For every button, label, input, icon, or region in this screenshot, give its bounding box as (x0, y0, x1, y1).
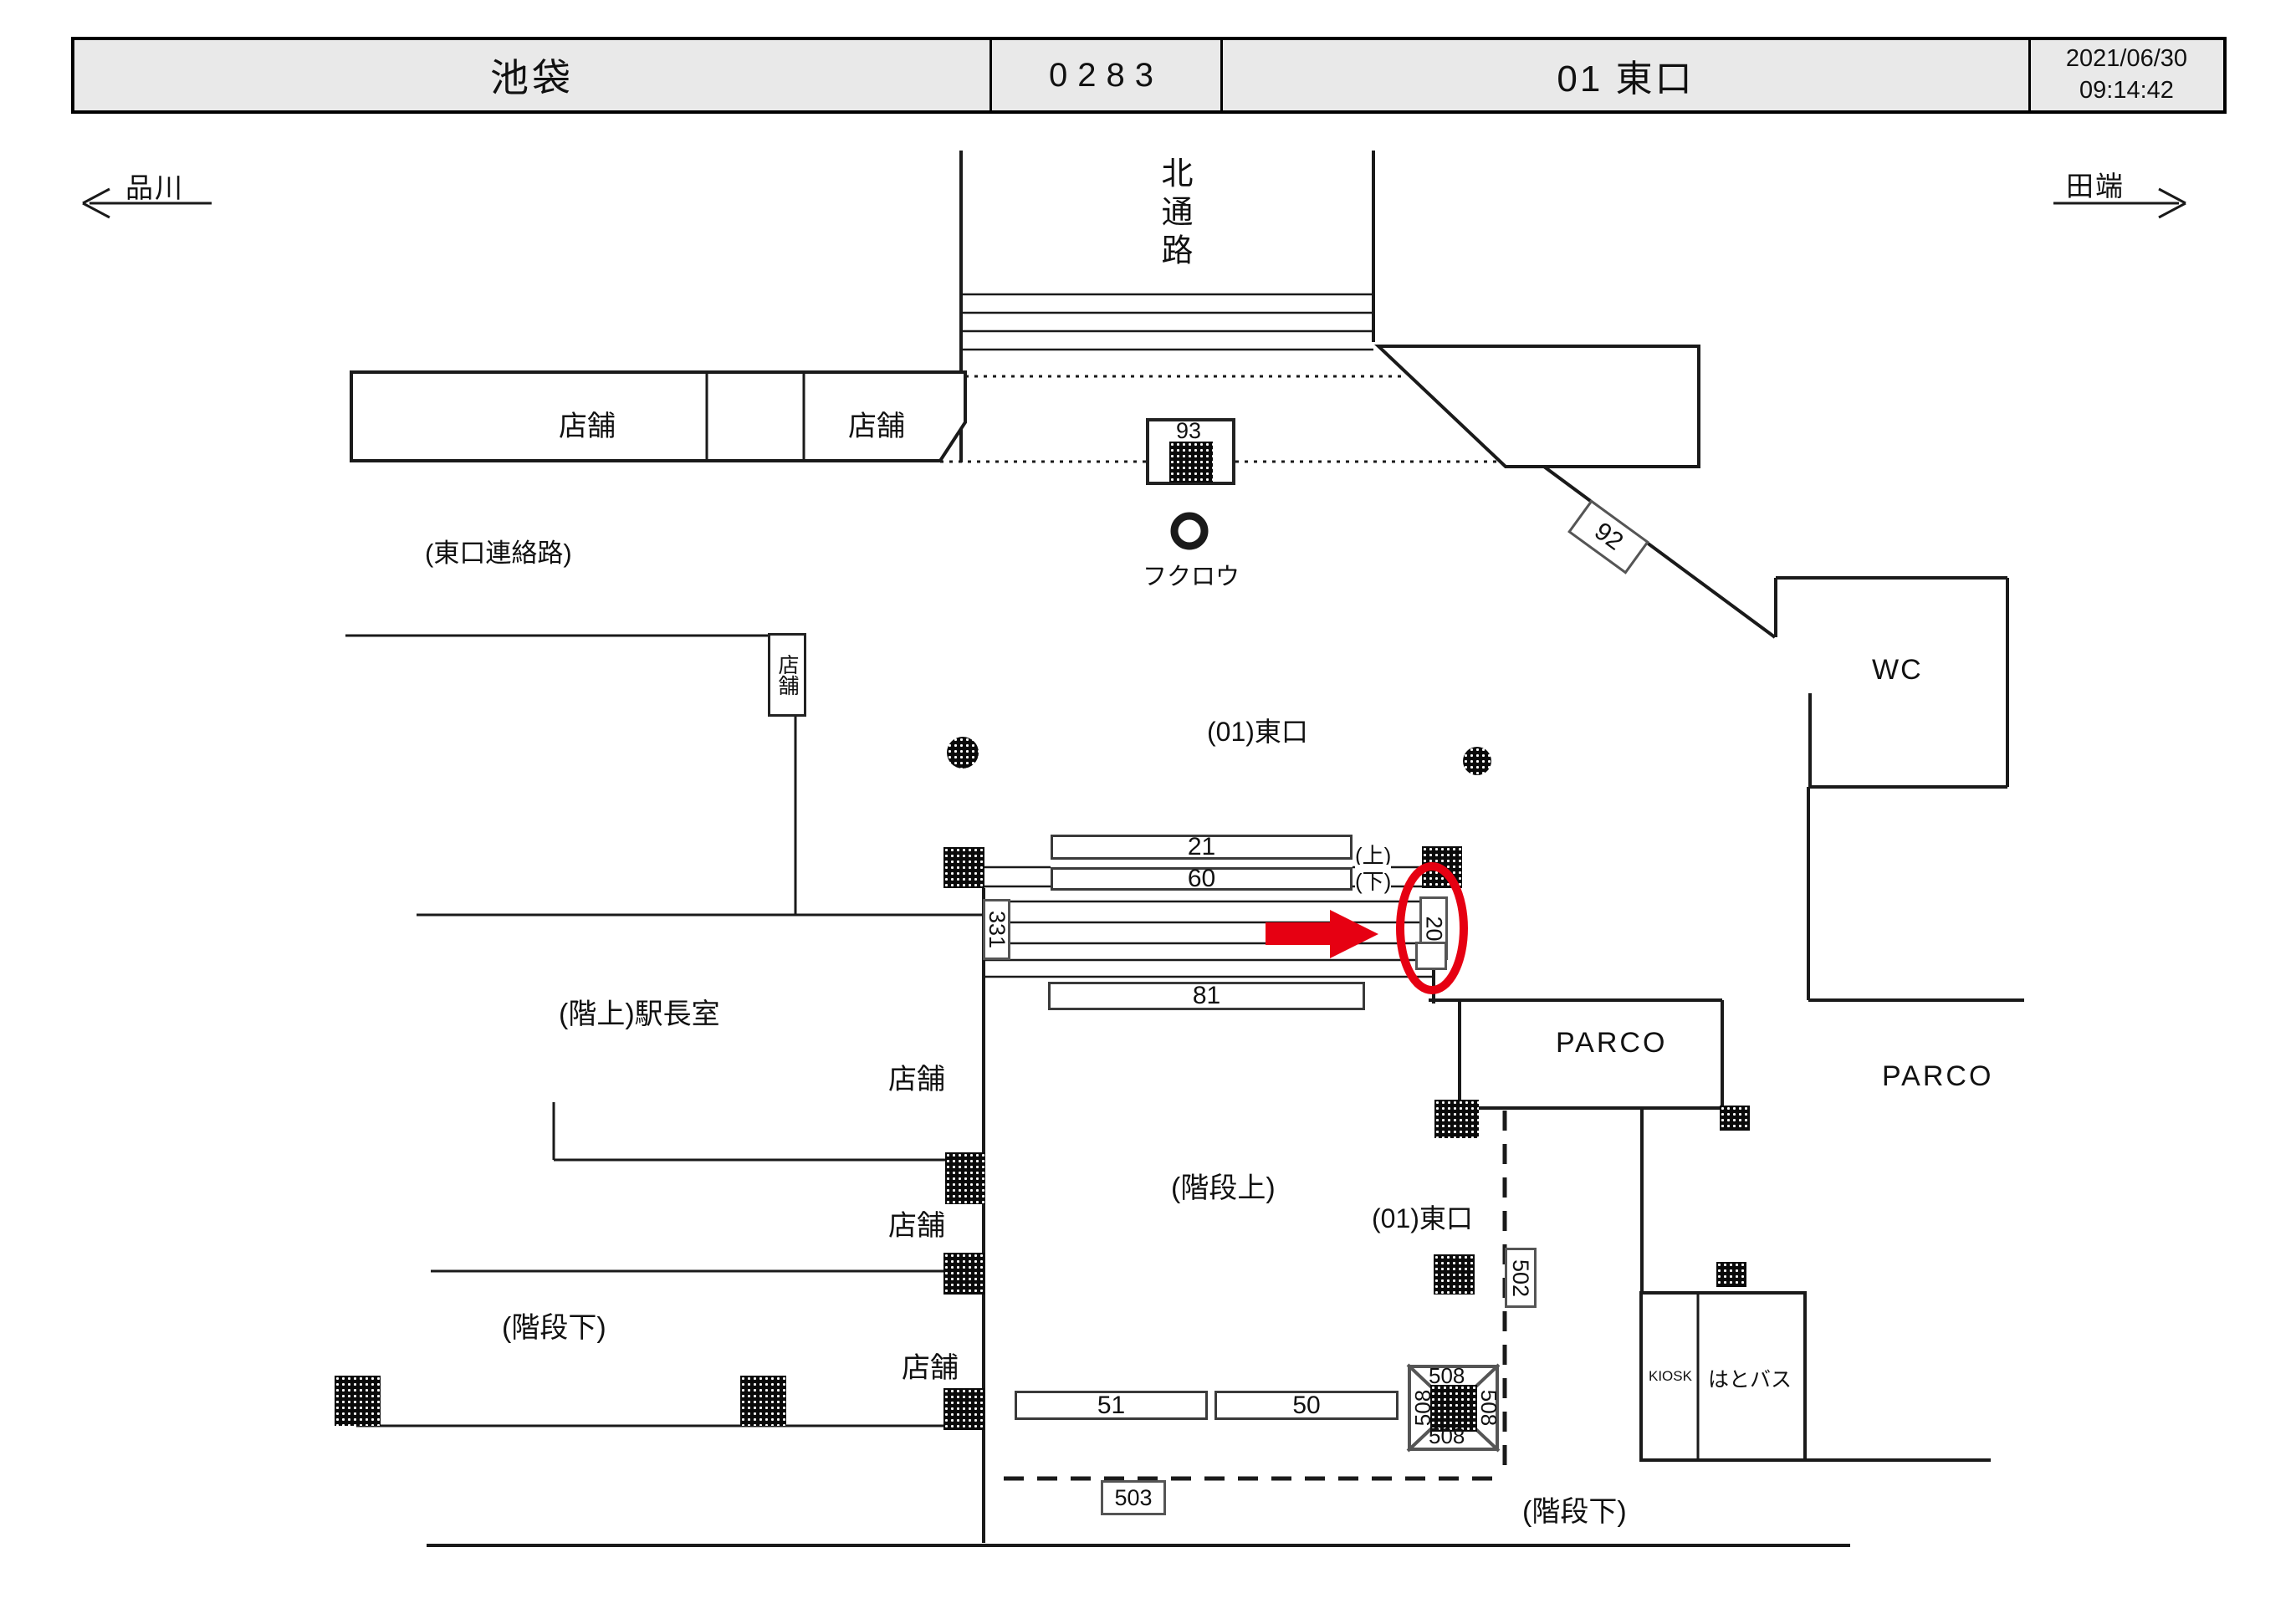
tag-503-label: 503 (1114, 1485, 1152, 1511)
shop-label-wall-2: 店舗 (888, 1203, 945, 1244)
tag-93-box[interactable]: 93 (1146, 418, 1235, 485)
station-map-canvas: 池袋 0283 01 東口 2021/06/30 09:14:42 品川 田端 … (0, 0, 2296, 1624)
tag-502-box[interactable]: 502 (1505, 1248, 1537, 1308)
hatobus-label: はとバス (1708, 1363, 1792, 1393)
tag-60-bar[interactable]: 60 (1051, 867, 1353, 891)
wall-pillar-3 (943, 1388, 984, 1430)
tag-81-bar[interactable]: 81 (1048, 982, 1365, 1010)
down-side-label: (下) (1355, 865, 1391, 896)
shop-label-band-1: 店舗 (559, 403, 616, 444)
tag-50-label: 50 (1292, 1392, 1320, 1420)
tag-20-label: 20 (1421, 916, 1447, 941)
shop-label-band-2: 店舗 (848, 403, 905, 444)
shop-label-wall-3: 店舗 (902, 1345, 959, 1386)
date-text: 2021/06/30 (2066, 43, 2187, 75)
parco-pillar-left (1434, 1100, 1479, 1138)
stationmaster-label: (階上)駅長室 (559, 991, 720, 1032)
tag-51-label: 51 (1097, 1392, 1125, 1420)
tag-503-box[interactable]: 503 (1101, 1480, 1166, 1515)
stairs-down-label-right: (階段下) (1522, 1489, 1627, 1530)
direction-left-label: 品川 (125, 166, 184, 206)
pillar-502 (1434, 1254, 1475, 1295)
floor-pillar-1 (335, 1376, 381, 1426)
tag-508-label-top: 508 (1429, 1363, 1465, 1389)
tag-81-label: 81 (1193, 982, 1220, 1010)
owl-label: フクロウ (1136, 557, 1246, 592)
shop-kiosk-box: 店舗 (768, 633, 806, 717)
parco-label-1: PARCO (1556, 1027, 1667, 1060)
header-bar: 池袋 0283 01 東口 2021/06/30 09:14:42 (71, 37, 2227, 114)
tag-508-label-bottom: 508 (1429, 1423, 1465, 1449)
tag-92-label: 92 (1589, 517, 1629, 556)
wall-pillar-1 (945, 1152, 985, 1204)
wall-pillar-2 (943, 1253, 984, 1295)
tag-50-bar[interactable]: 50 (1214, 1391, 1399, 1420)
kiosk-pillar (1716, 1262, 1746, 1287)
wc-room-outline (1776, 578, 2024, 1000)
tag-502-label: 502 (1508, 1259, 1534, 1296)
pillar-circle-left (947, 737, 979, 769)
east-exit-label-upper: (01)東口 (1207, 711, 1308, 749)
tag-60-label: 60 (1188, 865, 1215, 893)
wc-label: WC (1872, 654, 1923, 687)
floor-pillar-2 (740, 1376, 786, 1426)
owl-statue-icon (1174, 516, 1204, 546)
pillar-circle-right (1463, 747, 1491, 775)
parco-pillar-right (1720, 1106, 1750, 1131)
datetime-stamp: 2021/06/30 09:14:42 (2028, 40, 2222, 110)
north-passage-stairs (961, 294, 1373, 350)
tag-93-label: 93 (1176, 418, 1201, 444)
tag-508-label-left: 508 (1410, 1390, 1436, 1426)
stairs-down-label-left: (階段下) (502, 1305, 606, 1346)
pillar-square-right (1422, 846, 1462, 888)
tag-21-bar[interactable]: 21 (1051, 835, 1353, 860)
tag-20-sub-box (1415, 942, 1447, 970)
east-connecting-label: (東口連絡路) (425, 532, 572, 569)
north-passage-label: 北通路 (1151, 156, 1197, 272)
diagonal-wall (1544, 467, 1775, 637)
station-name: 池袋 (74, 40, 989, 110)
tag-331-box[interactable]: 331 (983, 899, 1010, 960)
tag-331-label: 331 (984, 911, 1010, 948)
pillar-square-left (943, 847, 984, 888)
screen-title: 01 東口 (1220, 40, 2028, 110)
tag-51-bar[interactable]: 51 (1015, 1391, 1208, 1420)
shop-label-wall-1: 店舗 (888, 1056, 945, 1097)
time-text: 09:14:42 (2079, 75, 2174, 107)
stairs-up-label: (階段上) (1171, 1165, 1276, 1206)
upper-right-building (1378, 346, 1699, 467)
kiosk-outline (1641, 1293, 1991, 1460)
tag-21-label: 21 (1188, 833, 1215, 861)
kiosk-label: KIOSK (1649, 1368, 1692, 1385)
tag-93-hatch (1169, 442, 1213, 483)
map-code: 0283 (989, 40, 1220, 110)
direction-right-label: 田端 (2066, 164, 2125, 204)
tag-508-label-right: 508 (1475, 1390, 1501, 1426)
shop-label-vertical: 店舗 (772, 654, 802, 696)
parco-label-2: PARCO (1882, 1060, 1993, 1093)
east-exit-label-lower: (01)東口 (1372, 1198, 1473, 1236)
